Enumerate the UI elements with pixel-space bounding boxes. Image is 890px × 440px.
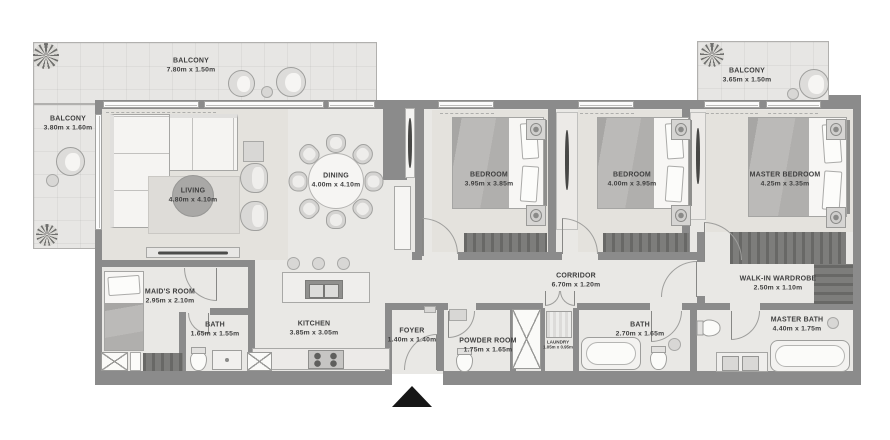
floor-plan: BALCONY7.80m x 1.50m BALCONY3.80m x 1.60…: [0, 0, 890, 440]
wall-bath2-masterbath: [690, 308, 697, 371]
balcony-table: [261, 86, 273, 98]
tv-console: [146, 247, 240, 258]
utility-door-panel: [130, 352, 141, 371]
bedroom-2-wardrobe: [603, 233, 689, 252]
master-nightstand-bottom: [826, 207, 846, 228]
wall-maid-kitchen: [248, 260, 255, 315]
plant-niche-dining: [408, 118, 412, 168]
corridor-bottom-wall-b: [476, 303, 510, 310]
maid-bed-pillow: [107, 275, 141, 296]
living-balcony-window: [95, 114, 102, 230]
bedroom-2-nightstand-bottom: [671, 205, 691, 226]
service-shaft-2: [247, 352, 272, 371]
bed-pillow: [520, 166, 540, 203]
bed-blanket: [749, 118, 809, 216]
walkin-closet-vertical: [814, 264, 853, 304]
island-sink: [305, 280, 343, 299]
label-dining: DINING4.00m x 4.10m: [312, 173, 361, 190]
curtain-track-master1: [706, 113, 758, 114]
hall-console: [394, 186, 411, 250]
kitchen-stool-3: [337, 257, 350, 270]
plant-icon: [33, 43, 59, 69]
kitchen-stool-2: [312, 257, 325, 270]
wall-laundry-bath2: [573, 308, 579, 371]
balcony-chair: [799, 69, 829, 99]
living-window-2: [204, 101, 324, 108]
masterbath-tub: [770, 340, 850, 372]
label-powder-room: POWDER ROOM1.75m x 1.65m: [459, 338, 516, 355]
plant-niche-bedrooms: [565, 130, 569, 190]
label-bedroom-1: BEDROOM3.95m x 3.85m: [465, 172, 514, 189]
bath2-sink: [668, 338, 681, 351]
bed-blanket: [453, 118, 509, 208]
label-kitchen: KITCHEN3.85m x 3.05m: [290, 321, 339, 338]
powder-toilet: [456, 352, 473, 372]
bottom-exterior-wall-right: [443, 371, 861, 385]
corridor-bottom-wall-d: [577, 303, 650, 310]
bed-headboard: [847, 120, 850, 214]
walkin-closet-horizontal: [730, 232, 846, 264]
corridor-top-wall-a: [412, 252, 422, 260]
armchair-2: [240, 201, 268, 231]
bedroom-1-nightstand-bottom: [526, 205, 546, 226]
label-laundry: LAUNDRY1.05m x 0.95m: [543, 340, 573, 351]
curtain-track-bedroom2: [580, 113, 634, 114]
label-maids-room: MAID'S ROOM2.95m x 2.10m: [145, 289, 195, 306]
bath1-shower: [212, 350, 242, 370]
label-walk-in-wardrobe: WALK-IN WARDROBE2.50m x 1.10m: [740, 276, 817, 293]
bath2-tub: [581, 337, 641, 370]
balcony-table: [46, 174, 59, 187]
balcony-step-wall: [829, 95, 861, 105]
masterbath-sink: [827, 317, 839, 329]
balcony-chair: [56, 147, 85, 176]
dining-chair: [326, 210, 346, 229]
label-living: LIVING4.80m x 4.10m: [169, 188, 218, 205]
maid-closet: [143, 353, 183, 371]
master-window-2: [766, 101, 821, 108]
plant-icon: [700, 43, 724, 67]
dining-chair: [289, 172, 308, 192]
maid-bed-blanket: [105, 303, 143, 350]
service-shaft-1: [101, 352, 128, 371]
curtain-track-living: [106, 112, 216, 113]
wall-wardrobe-masterbath-b: [760, 303, 853, 310]
living-window-1: [103, 101, 199, 108]
dining-chair: [326, 134, 346, 153]
bedroom-1-window: [438, 101, 494, 108]
label-balcony-top-left: BALCONY7.80m x 1.50m: [167, 58, 216, 75]
kitchen-stool-1: [287, 257, 300, 270]
corridor-top-wall-b: [458, 252, 562, 260]
foyer-shelf: [424, 306, 436, 313]
label-foyer: FOYER1.40m x 1.40m: [388, 328, 437, 345]
balcony-chair: [228, 70, 255, 97]
plant-icon: [36, 224, 58, 246]
bedroom-2-nightstand-top: [671, 119, 691, 140]
dining-chair: [365, 172, 384, 192]
bed-pillow: [665, 166, 685, 203]
bed-blanket: [598, 118, 654, 208]
stove: [308, 350, 344, 369]
bedroom-1-wardrobe: [464, 233, 547, 252]
laundry-machine: [546, 311, 572, 338]
dining-column: [383, 106, 407, 180]
entrance-arrow-icon: [392, 386, 432, 407]
label-master-bath: MASTER BATH4.40m x 1.75m: [771, 317, 824, 334]
bath1-toilet: [190, 351, 207, 371]
bedroom-1-nightstand-top: [526, 119, 546, 140]
wall-wardrobe-masterbath-a: [697, 303, 730, 310]
bedroom-2-window: [578, 101, 634, 108]
corridor-top-wall-c: [598, 252, 697, 260]
bottom-exterior-wall-left: [95, 371, 392, 385]
bath2-toilet: [650, 350, 667, 370]
armchair-1: [240, 163, 268, 193]
masterbath-toilet: [701, 320, 721, 337]
curtain-track-master2: [768, 113, 818, 114]
plant-niche-master: [696, 128, 700, 184]
label-bath-2: BATH2.70m x 1.65m: [616, 322, 665, 339]
bed-pillow: [821, 170, 842, 210]
balcony-chair: [276, 67, 306, 97]
label-balcony-top-right: BALCONY3.65m x 1.50m: [723, 68, 772, 85]
foyer-right-wall: [437, 303, 444, 371]
label-balcony-left: BALCONY3.80m x 1.60m: [44, 116, 93, 133]
living-bottom-wall: [102, 260, 248, 267]
side-table: [243, 141, 264, 162]
masterbath-vanity: [716, 352, 768, 372]
master-nightstand-top: [826, 119, 846, 140]
label-bath-1: BATH1.65m x 1.55m: [191, 322, 240, 339]
label-bedroom-2: BEDROOM4.00m x 3.95m: [608, 172, 657, 189]
master-window-1: [704, 101, 760, 108]
label-corridor: CORRIDOR6.70m x 1.20m: [552, 273, 601, 290]
balcony-table: [787, 88, 799, 100]
label-master-bedroom: MASTER BEDROOM4.25m x 3.35m: [750, 172, 821, 189]
curtain-track-bedroom1: [440, 113, 494, 114]
wall-bedroom1-bedroom2: [548, 106, 556, 254]
right-exterior-wall: [853, 100, 861, 385]
maid-bed: [104, 271, 144, 351]
living-window-3: [328, 101, 375, 108]
